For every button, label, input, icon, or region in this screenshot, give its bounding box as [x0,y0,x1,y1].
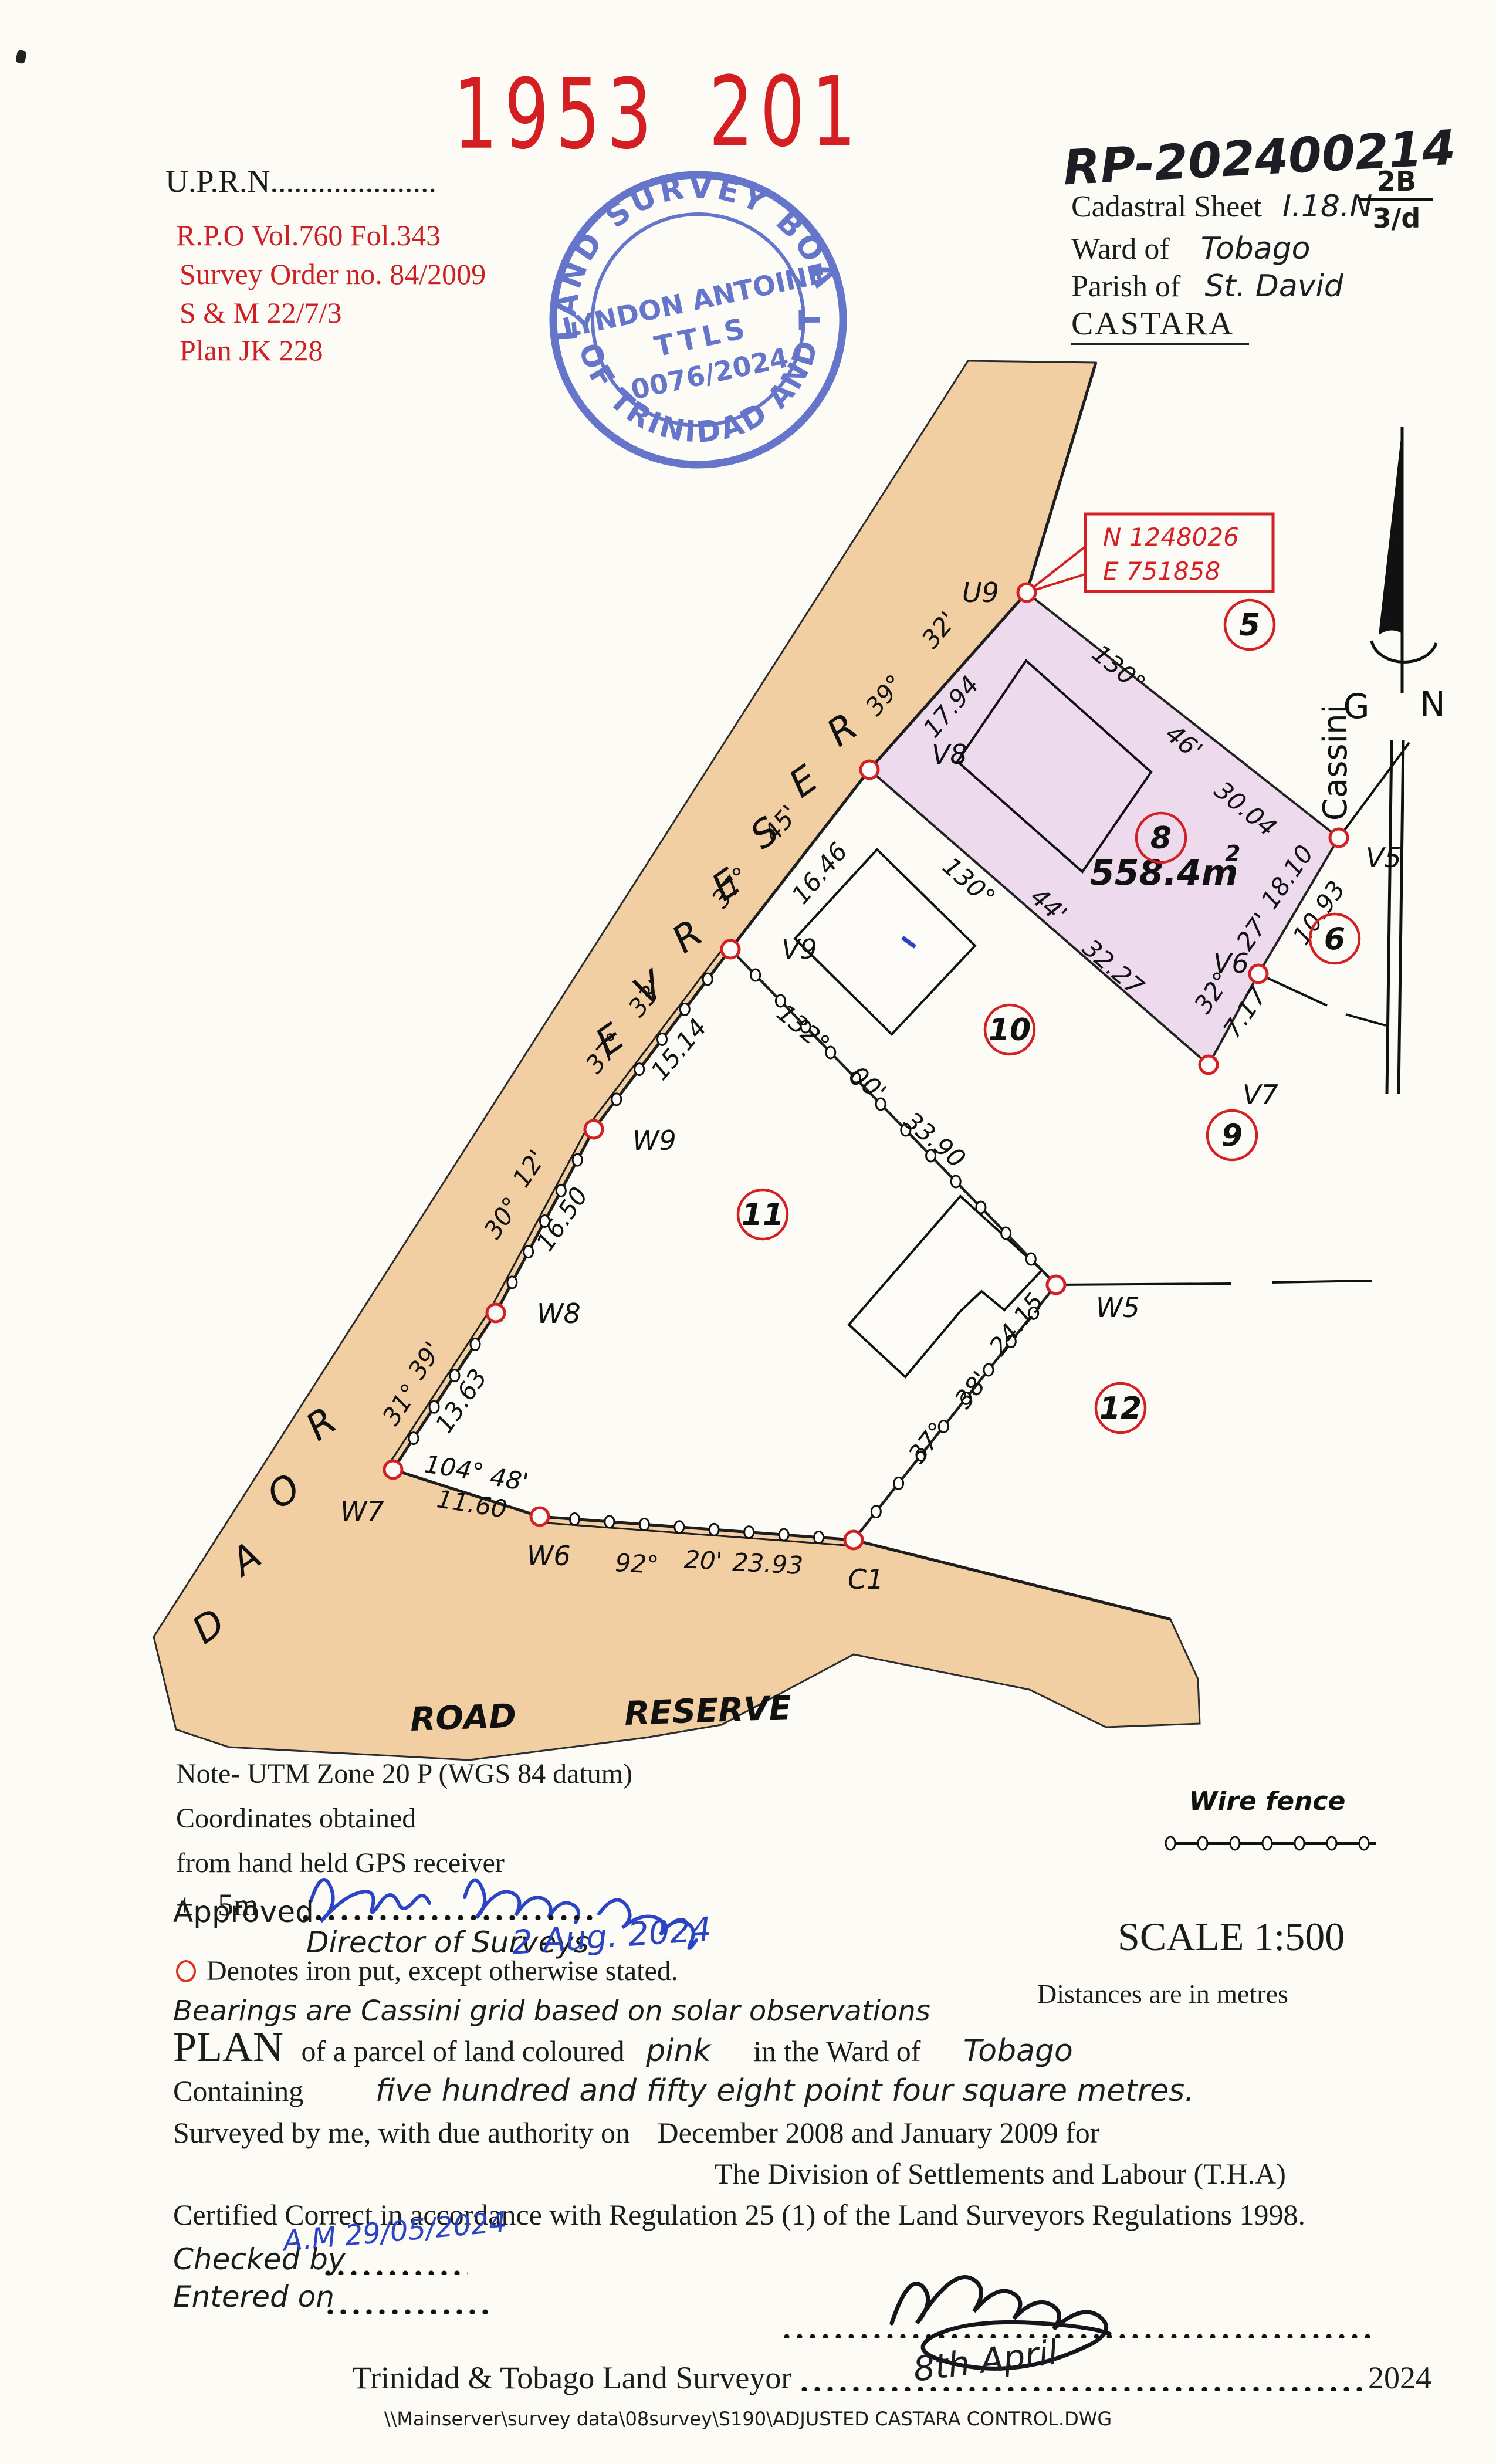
iron-pin-W9 [585,1121,603,1138]
fence-post [524,1246,533,1258]
fence-post [709,1524,719,1535]
lot-number-5: 5 [1239,608,1260,643]
iron-pin-symbol [176,1960,196,1982]
point-label-U9: U9 [962,577,999,608]
approved-dotted-line [299,1914,593,1920]
bearing-label: 33.90 [899,1106,972,1173]
fence-post [703,973,712,985]
tie-dash-w5 [1272,1281,1372,1282]
north-arrow [1372,427,1436,1094]
ward-value-statement: Tobago [963,2033,1073,2069]
surveyed-line: Surveyed by me, with due authority on De… [173,2116,1099,2150]
ward-value: Tobago [1201,231,1311,266]
fence-post [894,1477,903,1489]
footer-dotted-line [798,2385,1366,2391]
note-utm: Note- UTM Zone 20 P (WGS 84 datum) [176,1758,632,1790]
approved-label: Approved [173,1895,314,1929]
iron-pin-V8 [861,761,878,779]
area-name: CASTARA [1071,305,1249,345]
fence-post [814,1532,824,1544]
rpo-line: R.P.O Vol.760 Fol.343 [176,218,441,252]
tie-line-w5 [1056,1284,1231,1285]
legend-fence-post [1230,1837,1240,1850]
legend-fence-post [1327,1837,1336,1850]
plan-statement-line1: PLAN of a parcel of land coloured pink i… [173,2023,1073,2072]
ward-row: Ward of Tobago [1071,231,1311,266]
point-label-V5: V5 [1366,842,1402,874]
area-words: five hundred and fifty eight point four … [375,2073,1194,2108]
coord-e: E 751858 [1103,557,1220,585]
line1-b: in the Ward of [753,2035,920,2067]
legend-fence-post [1166,1837,1175,1850]
iron-pin-W5 [1047,1276,1065,1294]
legend-fence-post [1198,1837,1207,1850]
fence-post [871,1506,881,1518]
fence-post [1001,1227,1011,1239]
lot-number-6: 6 [1324,922,1345,957]
fence-post [779,1529,788,1541]
survey-plan-page: G N Cassini N 1248026 E 751858 558.4m 2 … [0,0,1496,2464]
point-label-W9: W9 [632,1125,676,1156]
bearing-label: 23.93 [732,1548,804,1580]
point-label-V8: V8 [932,739,967,770]
iron-pin-V7 [1200,1056,1217,1074]
cadastral-sheet-label: Cadastral Sheet [1071,190,1262,224]
fence-post [635,1064,644,1075]
lot-number-8: 8 [1150,821,1172,856]
checked-by-dotted [321,2269,468,2275]
fence-post [744,1527,754,1538]
wire-fence-label: Wire fence [1189,1786,1346,1816]
parish-value: St. David [1204,269,1343,304]
fence-post [826,1047,835,1058]
lot-number-10: 10 [989,1013,1031,1048]
point-label-V9: V9 [781,933,817,965]
grid-letter-n: N [1420,684,1445,724]
parish-row: Parish of St. David [1071,269,1343,304]
division-line: The Division of Settlements and Labour (… [715,2157,1286,2191]
point-label-W7: W7 [340,1495,384,1527]
point-label-W5: W5 [1096,1292,1140,1324]
sheet-fraction-top: 2B [1377,165,1416,197]
fence-post [612,1094,621,1105]
fence-post [570,1513,579,1525]
sheet-fraction: 2B 3/d [1360,165,1433,234]
distances-note: Distances are in metres [1037,1978,1288,2009]
fence-post [1026,1253,1035,1265]
entered-on-dotted [324,2308,491,2314]
road-bottom-label: ROAD [409,1697,517,1739]
surveyor-title-line: Trinidad & Tobago Land Surveyor [352,2360,791,2396]
scan-artifact [15,50,27,65]
iron-pin-V5 [1330,829,1348,847]
pink-word: pink [646,2033,711,2069]
iron-pin-V6 [1250,965,1267,983]
road-boundary-line [393,363,1170,1619]
line1-a: of a parcel of land coloured [302,2035,625,2067]
lot-number-12: 12 [1099,1391,1142,1426]
fence-post [976,1201,986,1213]
iron-pin-text: Denotes iron put, except otherwise state… [207,1955,678,1986]
surveyor-title: Trinidad & Tobago Land Surveyor [352,2360,791,2395]
fence-post [507,1277,517,1288]
lot-number-11: 11 [742,1197,784,1233]
tie-dash-v6 [1346,1014,1386,1025]
coord-n: N 1248026 [1103,523,1239,551]
survey-order-line: Survey Order no. 84/2009 [180,257,486,291]
fence-post [605,1516,614,1528]
legend-fence-post [1359,1837,1369,1850]
uprn-label: U.P.R.N..................... [165,163,436,199]
iron-pin-U9 [1018,584,1035,601]
sm-line: S & M 22/7/3 [180,296,341,330]
wire-fence-legend: Wire fence [1165,1786,1376,1850]
note-gps: from hand held GPS receiver [176,1847,505,1879]
fence-post [471,1338,480,1350]
parcel-area-label: 558.4m [1090,852,1238,893]
footer-year: 2024 [1368,2360,1431,2396]
lot-number-9: 9 [1221,1118,1243,1153]
containing-line: Containing five hundred and fifty eight … [173,2073,1194,2108]
parcel-area-sup: 2 [1225,841,1240,867]
bearing-label: 20' [683,1545,723,1575]
cadastral-sheet-value: I.18.N [1282,189,1372,224]
cassini-label: Cassini [1316,705,1355,821]
iron-pin-W8 [487,1304,505,1322]
fence-post [951,1176,960,1187]
fence-post [751,969,760,981]
file-path: \\Mainserver\survey data\08survey\S190\A… [0,2408,1496,2430]
parish-label: Parish of [1071,270,1180,303]
iron-pin-note: Denotes iron put, except otherwise state… [176,1955,678,1987]
iron-pin-W6 [531,1508,549,1525]
point-label-V6: V6 [1213,947,1249,979]
entered-on-label: Entered on [173,2280,334,2314]
iron-pin-V9 [722,940,739,958]
iron-pin-C1 [845,1531,862,1549]
legend-fence-post [1263,1837,1272,1850]
sheet-fraction-bottom: 3/d [1373,202,1421,234]
survey-dates: December 2008 and January 2009 for [658,2116,1100,2149]
legend-fence-post [1295,1837,1304,1850]
plan-jk-line: Plan JK 228 [180,333,323,367]
reserve-bottom-label: RESERVE [624,1689,792,1733]
cadastral-sheet-row: Cadastral Sheet I.18.N [1071,189,1372,224]
plan-word: PLAN [173,2023,283,2070]
point-label-W8: W8 [537,1298,581,1329]
note-coordinates: Coordinates obtained [176,1802,416,1835]
fence-post [573,1154,582,1166]
fence-post [639,1518,649,1530]
coordinate-callout: N 1248026 E 751858 [1027,514,1273,593]
red-plan-number-left: 1953 [453,59,658,171]
point-label-V7: V7 [1243,1079,1278,1111]
fence-post [409,1433,418,1444]
containing-label: Containing [173,2074,303,2107]
fence-post [984,1364,993,1376]
surveyed-label: Surveyed by me, with due authority on [173,2116,630,2149]
iron-pin-W7 [384,1461,402,1478]
point-label-W6: W6 [527,1540,571,1572]
bearing-label: 48' [488,1462,530,1497]
bearing-label: 92° [614,1548,659,1579]
red-plan-number-right: 201 [709,56,863,168]
scale-label: SCALE 1:500 [1118,1914,1345,1960]
ward-label: Ward of [1071,232,1170,266]
signature-dotted-line [780,2333,1376,2338]
fence-post [675,1521,684,1533]
fraction-bar [1360,198,1433,201]
point-label-C1: C1 [848,1563,884,1595]
fence-post [680,1003,689,1015]
